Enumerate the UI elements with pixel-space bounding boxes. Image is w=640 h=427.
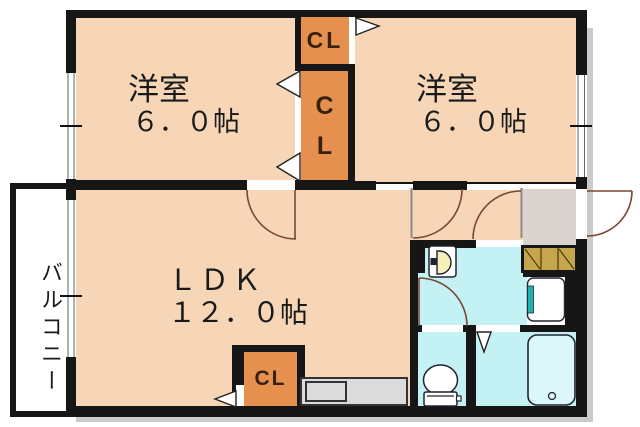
bedroom-right-size: ６．０帖 — [419, 100, 527, 139]
closet-mid: CL — [301, 71, 348, 180]
washing-machine-bay — [527, 277, 565, 325]
wall-washroom-top — [410, 240, 476, 248]
closet-ldk-label: CL — [255, 367, 287, 391]
shoe-cabinet-icon — [524, 248, 575, 270]
kitchen-sink — [305, 381, 347, 402]
bedroom-left-size: ６．０帖 — [132, 100, 240, 139]
entrance-door-opening — [576, 189, 587, 239]
ldk-size: １２．０帖 — [168, 291, 308, 331]
wall-pan-right — [565, 271, 576, 332]
closet-mid-label: CL — [312, 86, 338, 166]
bedroom-left-door-opening — [247, 180, 296, 190]
window-bedroom-left — [66, 73, 76, 179]
floor-plan: CL CL CL 洋室 ６．０帖 洋室 ６．０帖 ＬＤＫ １２．０帖 バルコニー — [0, 0, 640, 427]
toilet-door-opening — [422, 325, 463, 332]
shadow-bottom — [76, 417, 593, 422]
wall-hall-stub — [413, 181, 467, 190]
hallway — [376, 188, 523, 240]
closet-top-opening — [349, 17, 355, 64]
room-toilet — [418, 332, 466, 406]
closet-top-label: CL — [307, 27, 344, 54]
wall-bedroom-divider-left — [66, 180, 247, 190]
room-washroom — [418, 247, 527, 325]
closet-ldk-opening — [236, 385, 244, 406]
genkan-entrance — [523, 189, 576, 246]
wall-toilet-bath — [466, 332, 476, 406]
window-balcony-door — [66, 200, 76, 357]
bath-door-opening — [476, 325, 520, 332]
washroom-threshold — [476, 240, 521, 247]
window-bedroom-right — [576, 75, 587, 177]
shadow-right — [587, 28, 593, 421]
closet-ldk: CL — [244, 352, 297, 406]
wall-bedroom-divider-mid — [355, 181, 376, 190]
balcony-label: バルコニー — [16, 243, 66, 413]
room-bathroom — [476, 332, 576, 406]
hall-opening-b — [467, 184, 520, 190]
closet-top: CL — [301, 17, 349, 64]
wall-bottom — [66, 406, 587, 417]
hall-opening-a — [376, 184, 413, 190]
